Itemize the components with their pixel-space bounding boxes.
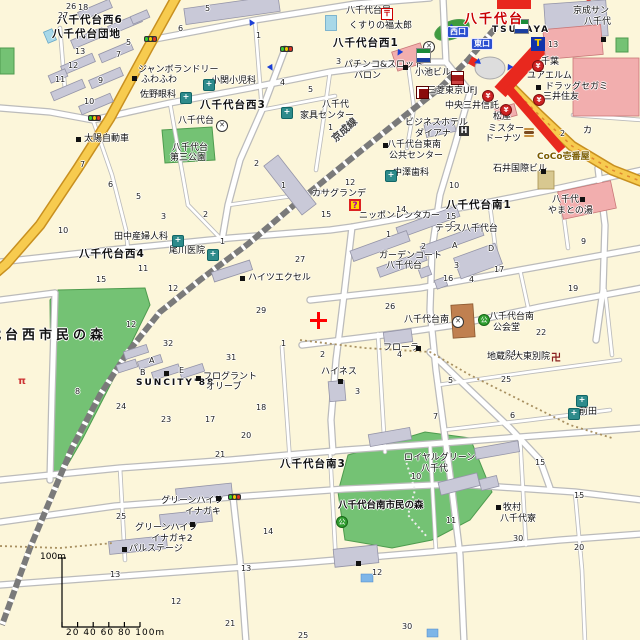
block-number: 32 — [163, 340, 173, 348]
bank-icon: ¥ — [532, 60, 544, 72]
block-number: 7 — [433, 413, 438, 421]
block-number: 25 — [116, 513, 126, 521]
traffic-icon — [280, 46, 293, 52]
place-label: 尾川医院 — [169, 247, 205, 257]
place-label: 八千代 — [584, 18, 611, 28]
poi-icon — [580, 197, 585, 202]
poi-icon — [536, 85, 541, 90]
block-number: 1 — [281, 182, 286, 190]
block-number: 7 — [80, 161, 85, 169]
police-icon: ✕ — [452, 316, 464, 328]
bank-icon: ¥ — [482, 90, 494, 102]
block-number: 15 — [446, 213, 456, 221]
torii-icon: π — [18, 377, 26, 387]
place-label: くすりの福太郎 — [349, 22, 412, 32]
block-number: 3 — [336, 58, 341, 66]
block-number: 20 — [241, 432, 251, 440]
block-number: 19 — [568, 285, 578, 293]
hospital-icon: + — [180, 92, 192, 104]
traffic-icon — [228, 494, 241, 500]
place-label: 地蔵院大東別院 — [487, 353, 550, 363]
block-number: 15 — [96, 276, 106, 284]
place-label: 前田 — [579, 408, 597, 418]
poi-icon — [416, 346, 421, 351]
poi-icon — [383, 143, 388, 148]
qbadge-icon: ? — [349, 199, 361, 211]
traffic-icon — [88, 115, 101, 121]
place-label: 八千代台 — [178, 117, 214, 127]
block-number: 10 — [84, 98, 94, 106]
arrow-icon: ▲ — [246, 17, 255, 27]
place-label: オリーブ — [206, 383, 241, 393]
block-number: 2 — [421, 243, 426, 251]
arrow-icon: ▲ — [472, 58, 482, 67]
poi-icon — [356, 561, 361, 566]
block-number: 8 — [75, 388, 80, 396]
station-name-label: 八千代台 — [464, 8, 524, 27]
place-label: 八千代台南 — [489, 313, 534, 323]
block-number: 27 — [295, 256, 305, 264]
block-number: 12 — [372, 569, 382, 577]
block-number: 1 — [256, 32, 261, 40]
block-number: 6 — [108, 181, 113, 189]
poi-icon — [190, 522, 195, 527]
district-label: 八千代台団地 — [52, 29, 121, 41]
block-number: 12 — [68, 62, 78, 70]
hospital-icon: + — [281, 107, 293, 119]
place-label: 八千代 — [322, 101, 349, 111]
block-number: 15 — [535, 459, 545, 467]
scale-bar: 100m 20 40 60 80 100m — [0, 540, 170, 640]
block-number: 15 — [321, 211, 331, 219]
scale-vertical-label: 100m — [40, 552, 66, 562]
district-label: 八千代台西4 — [79, 249, 145, 261]
bank-icon: ¥ — [500, 104, 512, 116]
block-number: 6 — [178, 25, 183, 33]
block-number: 5 — [205, 5, 210, 13]
place-label: 中澤歯科 — [393, 169, 429, 179]
district-label: 八千代台西1 — [333, 38, 399, 50]
block-number: 3 — [355, 388, 360, 396]
block-number: 25 — [298, 632, 308, 640]
hospital-icon: + — [207, 249, 219, 261]
station-west-exit-badge: 西口 — [447, 26, 469, 38]
arrow-icon: ▲ — [504, 63, 513, 73]
poi-icon — [338, 379, 343, 384]
place-label: 八千代 — [421, 465, 448, 475]
place-label: 小池ビル — [415, 69, 451, 79]
block-number: 11 — [446, 517, 456, 525]
block-number: 17 — [494, 266, 504, 274]
place-label: 牧村 — [503, 504, 521, 514]
block-number: 26 — [66, 3, 76, 11]
block-number: B — [140, 369, 146, 377]
ufjsq-icon — [416, 86, 429, 99]
temple-icon: 卍 — [551, 354, 561, 364]
traffic-icon — [144, 36, 157, 42]
block-number: 5 — [126, 39, 131, 47]
park-label: 八千代台西市民の森 — [0, 329, 107, 343]
hospital-icon: + — [568, 408, 580, 420]
place-label: 三菱東京UFJ — [427, 87, 477, 97]
block-number: 3 — [161, 213, 166, 221]
center-marker — [310, 312, 327, 329]
block-number: 15 — [574, 492, 584, 500]
place-label: 三井住友 — [543, 93, 579, 103]
place-label: パチンコ&スロット — [344, 61, 423, 71]
block-number: 3 — [454, 262, 459, 270]
block-number: 27 — [58, 12, 68, 20]
arrow-icon: ▲ — [266, 63, 275, 73]
poi-icon — [164, 371, 169, 376]
block-number: 4 — [469, 276, 474, 284]
block-number: 24 — [506, 350, 516, 358]
place-label: ハイネス — [321, 368, 357, 378]
hospital-icon: + — [172, 235, 184, 247]
place-label: 公会堂 — [493, 324, 520, 334]
block-number: 23 — [161, 416, 171, 424]
park-icon: 公 — [336, 516, 348, 528]
poi-icon — [541, 169, 546, 174]
block-number: 30 — [513, 535, 523, 543]
place-label: ドーナツ — [485, 135, 521, 145]
stripelogo-icon — [416, 48, 431, 63]
block-number: 2 — [560, 130, 565, 138]
block-number: 7 — [116, 51, 121, 59]
block-number: 13 — [241, 565, 251, 573]
block-number: C — [450, 221, 456, 229]
hospital-icon: + — [203, 79, 215, 91]
place-label: 八千代 — [552, 196, 579, 206]
block-number: 1 — [281, 340, 286, 348]
poi-icon — [132, 76, 137, 81]
block-number: 24 — [116, 403, 126, 411]
block-number: 1 — [328, 124, 333, 132]
bank-icon: ¥ — [533, 94, 545, 106]
block-number: 13 — [548, 41, 558, 49]
place-label: テラス八千代台 — [435, 225, 498, 235]
block-number: 11 — [55, 76, 65, 84]
block-number: 11 — [138, 265, 148, 273]
burger-icon — [524, 128, 534, 137]
block-number: 1 — [220, 238, 225, 246]
block-number: 25 — [501, 376, 511, 384]
block-number: 14 — [396, 206, 406, 214]
block-number: 9 — [98, 77, 103, 85]
block-number: 31 — [226, 354, 236, 362]
poi-icon — [76, 137, 81, 142]
block-number: 14 — [263, 528, 273, 536]
poi-icon — [601, 37, 606, 42]
place-label: イナガキ — [185, 508, 221, 518]
block-number: 2 — [203, 211, 208, 219]
place-label: バロン — [354, 72, 381, 82]
block-number: 21 — [215, 451, 225, 459]
block-number: 10 — [449, 182, 459, 190]
poi-icon — [216, 496, 221, 501]
hospital-icon: + — [385, 170, 397, 182]
place-label: 石井国際ビル — [493, 165, 547, 175]
block-number: 6 — [510, 412, 515, 420]
block-number: 1 — [386, 231, 391, 239]
place-label: 家具センター — [300, 112, 354, 122]
place-label: ユアエルム — [527, 72, 572, 82]
place-label: 小関小児科 — [211, 77, 256, 87]
place-label: やまとの湯 — [548, 207, 593, 217]
park-label: 八千代台南市民の森 — [338, 501, 424, 511]
block-number: A — [149, 357, 154, 365]
place-label: グリーンハイツ — [161, 497, 223, 507]
block-number: 13 — [75, 48, 85, 56]
block-number: 4 — [397, 351, 402, 359]
district-label: 八千代台南3 — [280, 459, 346, 471]
place-label: 八千代台東南 — [387, 141, 441, 151]
block-number: 12 — [168, 285, 178, 293]
place-label: カ — [583, 127, 592, 137]
place-label: 太陽自動車 — [84, 135, 129, 145]
place-label: 公共センター — [389, 152, 443, 162]
block-number: 12 — [171, 598, 181, 606]
place-label: ロイヤルグリーン — [404, 454, 475, 464]
block-number: 16 — [443, 275, 453, 283]
place-label: 八千代台 — [386, 262, 422, 272]
place-label: ふわふわ — [141, 76, 177, 86]
place-label: ダイアナ — [415, 130, 451, 140]
place-label: 八千代寮 — [500, 515, 536, 525]
scale-tick-labels: 20 40 60 80 100m — [66, 628, 165, 638]
place-label: 京成サン — [573, 7, 609, 17]
block-number: 5 — [136, 193, 141, 201]
poi-icon — [496, 505, 501, 510]
block-number: 26 — [385, 303, 395, 311]
block-number: 5 — [448, 377, 453, 385]
block-number: 4 — [280, 79, 285, 87]
block-number: A — [452, 242, 457, 250]
block-number: D — [488, 245, 494, 253]
map-canvas[interactable]: 八千代台西6八千代台団地八千代台西3八千代台西1八千代台西4八千代台南1八千代台… — [0, 0, 640, 640]
place-label: 八千代台南 — [404, 316, 449, 326]
poi-icon — [240, 276, 245, 281]
place-label: CoCo壱番屋 — [537, 153, 590, 163]
park-icon: 公 — [478, 314, 490, 326]
block-number: 12 — [345, 179, 355, 187]
block-number: 2 — [254, 160, 259, 168]
police-icon: ✕ — [216, 120, 228, 132]
poi-icon — [403, 65, 408, 70]
block-number: 30 — [402, 623, 412, 631]
tsutayalogo-icon: T — [531, 37, 545, 51]
block-number: 10 — [411, 473, 421, 481]
place-label: 第三公園 — [170, 154, 206, 164]
station-east-exit-badge: 東口 — [471, 38, 493, 50]
place-label: 田中産婦人科 — [114, 233, 168, 243]
block-number: 18 — [78, 4, 88, 12]
block-number: 18 — [256, 404, 266, 412]
place-label: 中央三井信託 — [445, 102, 499, 112]
redstripe-icon — [451, 71, 464, 85]
place-label: ハイツエクセル — [248, 274, 311, 284]
block-number: 9 — [581, 238, 586, 246]
post-icon: 〒 — [381, 8, 393, 20]
block-number: 10 — [58, 227, 68, 235]
block-number: 2 — [320, 351, 325, 359]
block-number: 12 — [126, 321, 136, 329]
block-number: 22 — [536, 329, 546, 337]
block-number: 5 — [308, 86, 313, 94]
poi-icon — [196, 376, 201, 381]
district-label: 八千代台西3 — [200, 100, 266, 112]
block-number: 17 — [205, 416, 215, 424]
block-number: 29 — [256, 307, 266, 315]
district-label: 八千代台南1 — [446, 200, 512, 212]
hotel-icon: H — [459, 126, 469, 136]
block-number: E — [179, 367, 184, 375]
block-number: 20 — [574, 544, 584, 552]
place-label: グリーンハイツ — [135, 524, 197, 534]
place-label: 佐野眼科 — [140, 91, 176, 101]
hospital-icon: + — [576, 395, 588, 407]
block-number: 21 — [225, 620, 235, 628]
